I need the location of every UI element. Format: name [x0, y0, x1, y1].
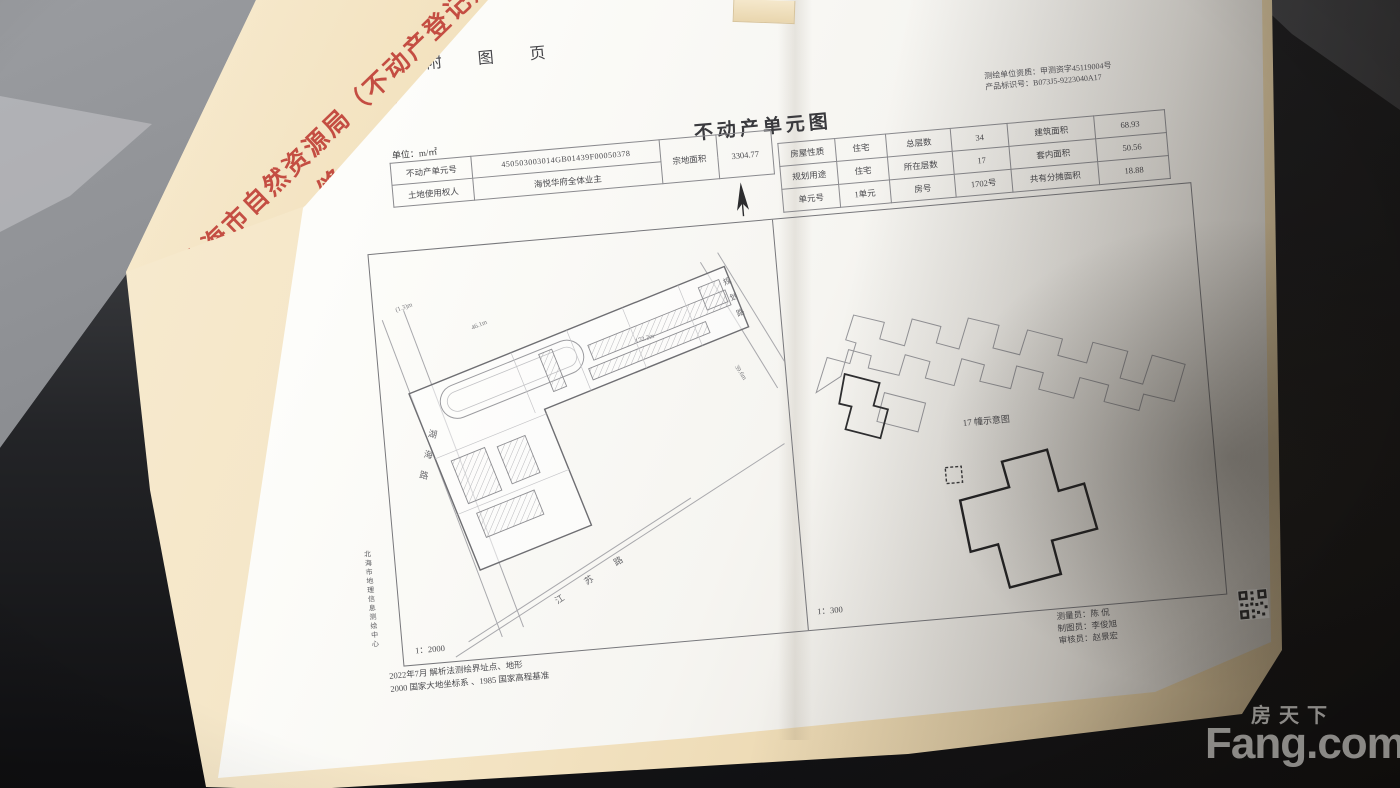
cell: 1单元: [839, 180, 892, 207]
site-plan-scale: 1：2000: [415, 642, 446, 657]
unit-plan-scale: 1：300: [817, 603, 843, 617]
staff-signatures: 测量员：陈 侃 制图员：李俊旭 审核员：赵景宏: [1056, 605, 1118, 646]
cell: 单元号: [782, 184, 841, 212]
north-arrow-icon: [730, 181, 755, 217]
page-content: 附 图 页 测绘单位资质：甲测资字45119004号 产品标识号：B073J5-…: [235, 0, 1334, 717]
unit-plan-panel: 17 幢示意图 1：300: [773, 183, 1226, 630]
parcel-area-value: 3304.77: [716, 130, 775, 179]
cell: 18.88: [1098, 156, 1171, 185]
surveyor-credential-block: 测绘单位资质：甲测资字45119004号 产品标识号：B073J5-922304…: [984, 52, 1205, 93]
cell: 房号: [889, 174, 956, 203]
qr-code: [1237, 588, 1270, 621]
map-frame: 湖海路 江苏路 规划路 46.1m 172.2m 39.6m (1.3)m 1：…: [367, 182, 1227, 667]
building-outline-drawing: [773, 183, 1226, 630]
parcel-info-table: 不动产单元号 450503003014GB01439F00050378 宗地面积…: [390, 130, 775, 208]
agency-vertical-note: 北海市地理信息测绘中心: [362, 550, 382, 670]
photo-of-document: 附 图 页 测绘单位资质：甲测资字45119004号 产品标识号：B073J5-…: [0, 0, 1400, 788]
site-plan-panel: 湖海路 江苏路 规划路 46.1m 172.2m 39.6m (1.3)m 1：…: [369, 220, 808, 666]
cell: 1702号: [954, 169, 1013, 197]
parcel-area-label: 宗地面积: [659, 135, 720, 184]
